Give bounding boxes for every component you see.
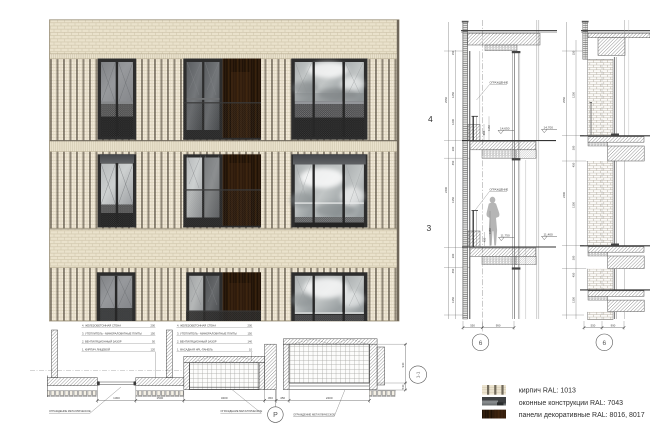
svg-text:11,750: 11,750: [501, 233, 511, 237]
svg-text:2400: 2400: [326, 396, 333, 400]
svg-text:2400: 2400: [562, 192, 566, 198]
svg-text:1-1: 1-1: [415, 371, 420, 378]
svg-text:ОГРАЖДЕНИЕ МЕТАЛЛИЧЕСКОЕ: ОГРАЖДЕНИЕ МЕТАЛЛИЧЕСКОЕ: [220, 409, 262, 413]
svg-text:120: 120: [151, 347, 156, 351]
svg-text:ОГРАЖДЕНИЕ МЕТАЛЛИЧЕСКОЕ: ОГРАЖДЕНИЕ МЕТАЛЛИЧЕСКОЕ: [49, 409, 91, 413]
svg-text:оконные конструкции RAL: 7043: оконные конструкции RAL: 7043: [519, 400, 623, 407]
svg-text:1500: 1500: [156, 396, 163, 400]
svg-text:200: 200: [248, 323, 253, 327]
svg-text:450: 450: [268, 396, 273, 400]
svg-text:1. КИРПИЧ ЛИЦЕВОЙ: 1. КИРПИЧ ЛИЦЕВОЙ: [82, 347, 110, 351]
svg-text:940: 940: [401, 362, 405, 367]
svg-text:450: 450: [280, 396, 285, 400]
svg-text:450: 450: [572, 272, 576, 277]
svg-text:ОГРАЖДЕНИЕ: ОГРАЖДЕНИЕ: [490, 81, 509, 85]
svg-text:1. ФАСАДНАЯ HPL-ПАНЕЛЬ: 1. ФАСАДНАЯ HPL-ПАНЕЛЬ: [177, 347, 213, 351]
svg-text:ОГРАЖДЕНИЕ МЕТАЛЛИЧЕСКОЕ: ОГРАЖДЕНИЕ МЕТАЛЛИЧЕСКОЕ: [293, 412, 335, 416]
svg-text:1250: 1250: [451, 92, 455, 98]
svg-text:300: 300: [451, 253, 455, 258]
svg-text:6: 6: [602, 340, 606, 347]
svg-text:3. УТЕПЛИТЕЛЬ - МИНЕРАЛОВАТНЫЕ: 3. УТЕПЛИТЕЛЬ - МИНЕРАЛОВАТНЫЕ ПЛИТЫ: [177, 331, 237, 335]
svg-text:450: 450: [572, 162, 576, 167]
svg-text:300: 300: [451, 146, 455, 151]
svg-text:Р: Р: [273, 412, 278, 419]
svg-text:кирпич RAL: 1013: кирпич RAL: 1013: [519, 388, 576, 395]
svg-text:4: 4: [428, 114, 433, 124]
svg-text:140: 140: [248, 339, 253, 343]
svg-text:2. ВЕНТИЛЯЦИОННЫЙ ЗАЗОР: 2. ВЕНТИЛЯЦИОННЫЙ ЗАЗОР: [177, 339, 217, 343]
svg-text:50: 50: [152, 339, 155, 343]
svg-text:3400: 3400: [221, 396, 228, 400]
svg-text:150: 150: [451, 50, 455, 55]
svg-text:2400: 2400: [444, 187, 448, 193]
svg-text:1350: 1350: [451, 297, 455, 303]
svg-text:11,400: 11,400: [544, 232, 554, 236]
svg-text:1350: 1350: [572, 297, 576, 303]
svg-text:1350: 1350: [451, 197, 455, 203]
svg-text:1250: 1250: [572, 92, 576, 98]
svg-text:300: 300: [572, 255, 576, 260]
svg-text:3: 3: [427, 223, 432, 233]
svg-text:4. ЖЕЛЕЗОБЕТОННАЯ СТЕНА: 4. ЖЕЛЕЗОБЕТОННАЯ СТЕНА: [82, 323, 121, 327]
svg-text:2550: 2550: [444, 97, 448, 103]
svg-text:990: 990: [611, 323, 616, 327]
svg-text:530: 530: [401, 384, 405, 389]
svg-text:450: 450: [451, 268, 455, 273]
svg-text:550: 550: [591, 323, 596, 327]
svg-text:6: 6: [479, 340, 483, 347]
svg-text:10: 10: [249, 347, 252, 351]
svg-text:1300: 1300: [113, 396, 120, 400]
svg-text:2. ВЕНТИЛЯЦИОННЫЙ ЗАЗОР: 2. ВЕНТИЛЯЦИОННЫЙ ЗАЗОР: [82, 339, 122, 343]
svg-text:990: 990: [496, 323, 501, 327]
svg-text:панели декоративные RAL: 8016,: панели декоративные RAL: 8016, 8017: [519, 412, 645, 419]
svg-text:200: 200: [151, 323, 156, 327]
svg-text:150: 150: [572, 50, 576, 55]
svg-text:4. ЖЕЛЕЗОБЕТОННАЯ СТЕНА: 4. ЖЕЛЕЗОБЕТОННАЯ СТЕНА: [177, 323, 216, 327]
svg-text:ОГРАЖДЕНИЕ: ОГРАЖДЕНИЕ: [490, 187, 509, 191]
svg-text:150: 150: [248, 331, 253, 335]
svg-text:14,700: 14,700: [544, 125, 554, 129]
svg-text:3. УТЕПЛИТЕЛЬ - МИНЕРАЛОВАТНЫЕ: 3. УТЕПЛИТЕЛЬ - МИНЕРАЛОВАТНЫЕ ПЛИТЫ: [82, 331, 142, 335]
svg-text:450: 450: [451, 160, 455, 165]
svg-text:1200: 1200: [451, 119, 455, 125]
svg-text:1350: 1350: [572, 202, 576, 208]
svg-text:14,650: 14,650: [500, 126, 510, 130]
svg-text:2550: 2550: [562, 97, 566, 103]
svg-text:300: 300: [572, 145, 576, 150]
svg-text:550: 550: [470, 323, 475, 327]
svg-text:150: 150: [151, 331, 156, 335]
